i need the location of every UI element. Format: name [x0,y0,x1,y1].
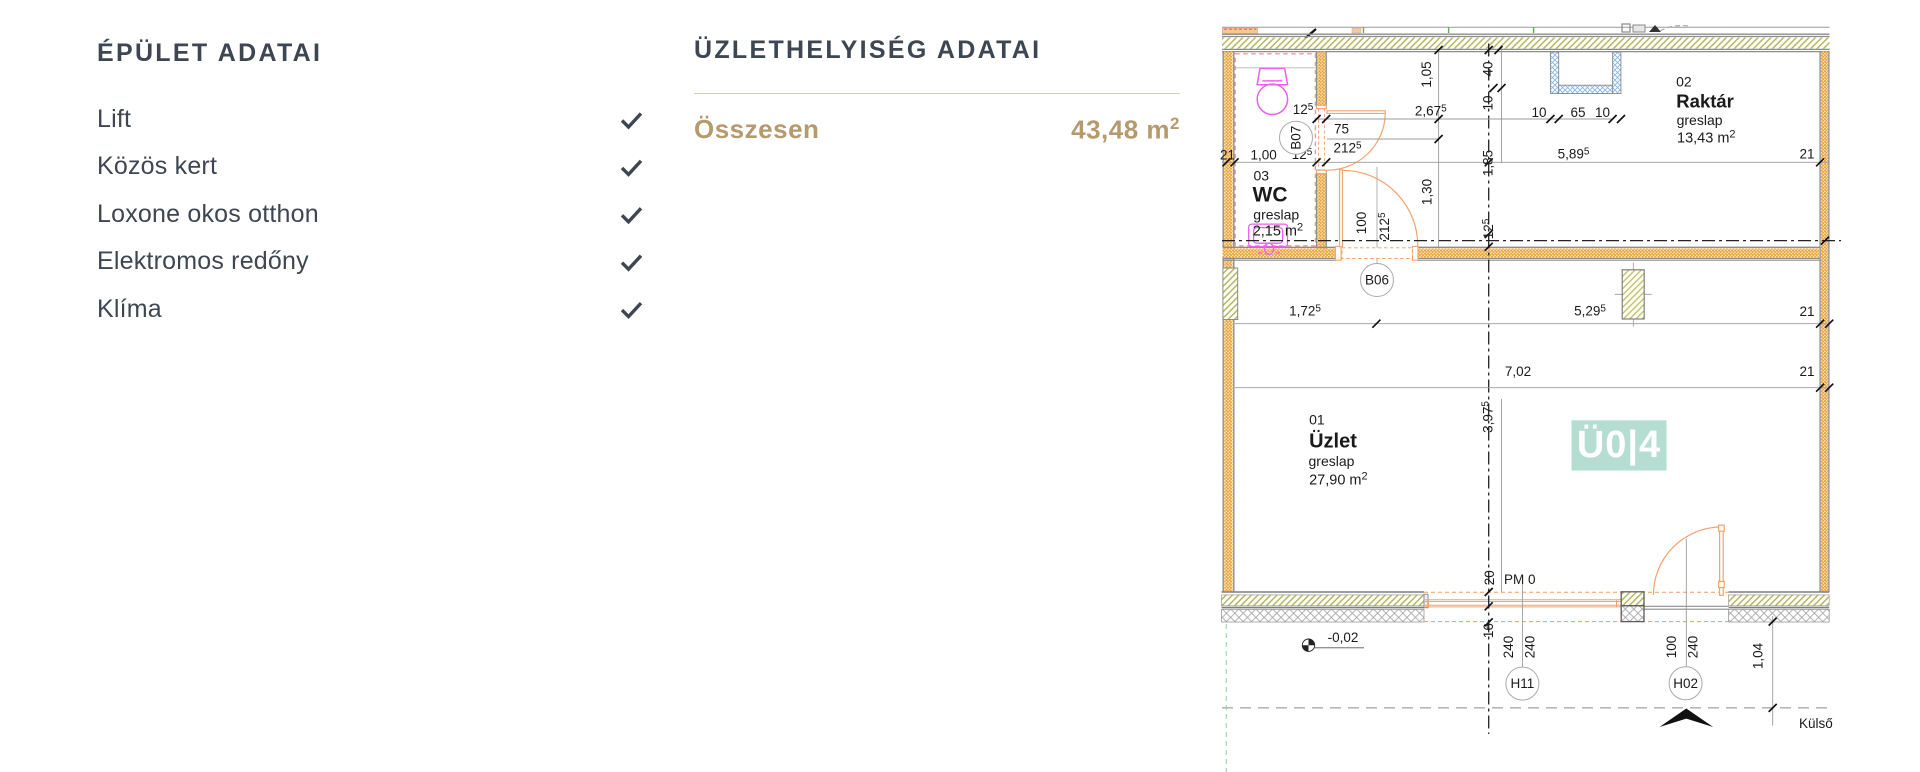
svg-text:65: 65 [1570,105,1585,120]
svg-text:03: 03 [1254,167,1270,183]
svg-text:5,295: 5,295 [1574,303,1606,318]
svg-text:10: 10 [1531,105,1546,120]
svg-text:21: 21 [1799,304,1814,319]
svg-text:-0,02: -0,02 [1328,630,1359,645]
svg-text:1,04: 1,04 [1751,642,1766,669]
svg-text:H11: H11 [1511,676,1535,691]
svg-text:21: 21 [1799,364,1814,379]
svg-text:100: 100 [1354,212,1369,235]
svg-text:125: 125 [1293,102,1314,117]
svg-text:Ü0|4: Ü0|4 [1577,423,1661,466]
svg-text:B06: B06 [1365,273,1389,288]
svg-text:7,02: 7,02 [1505,364,1531,379]
svg-text:1,00: 1,00 [1250,148,1276,163]
svg-text:20: 20 [1482,570,1497,585]
svg-text:125: 125 [1481,218,1496,239]
svg-text:B07: B07 [1289,126,1304,150]
svg-text:16: 16 [1481,623,1496,638]
svg-text:1,85: 1,85 [1480,150,1495,176]
svg-text:3,975: 3,975 [1481,401,1496,433]
svg-text:240: 240 [1522,636,1537,659]
svg-text:1,30: 1,30 [1419,179,1434,205]
svg-text:13,43 m2: 13,43 m2 [1677,129,1736,147]
svg-text:21: 21 [1799,147,1814,162]
svg-text:greslap: greslap [1309,453,1355,469]
svg-text:2125: 2125 [1377,212,1392,241]
svg-text:Üzlet: Üzlet [1309,430,1357,453]
svg-text:240: 240 [1686,636,1701,659]
svg-text:Raktár: Raktár [1676,90,1734,111]
svg-text:2,15 m2: 2,15 m2 [1253,222,1303,240]
svg-text:5,895: 5,895 [1558,147,1590,162]
svg-text:240: 240 [1501,636,1516,659]
svg-text:Külső: Külső [1799,716,1833,731]
svg-text:40: 40 [1481,61,1496,76]
svg-text:1,725: 1,725 [1289,303,1321,318]
svg-text:H02: H02 [1673,676,1698,691]
svg-text:10: 10 [1481,95,1496,110]
svg-text:02: 02 [1676,74,1692,90]
svg-text:27,90 m2: 27,90 m2 [1309,470,1368,488]
svg-text:greslap: greslap [1677,112,1723,128]
svg-text:100: 100 [1664,636,1679,659]
svg-text:01: 01 [1309,412,1325,428]
svg-text:WC: WC [1253,183,1288,206]
svg-text:greslap: greslap [1253,207,1299,223]
svg-text:PM 0: PM 0 [1504,572,1536,587]
svg-text:2125: 2125 [1333,141,1362,156]
svg-text:21: 21 [1220,148,1235,163]
svg-text:10: 10 [1595,105,1610,120]
svg-text:75: 75 [1334,122,1349,137]
svg-text:1,05: 1,05 [1419,61,1434,87]
